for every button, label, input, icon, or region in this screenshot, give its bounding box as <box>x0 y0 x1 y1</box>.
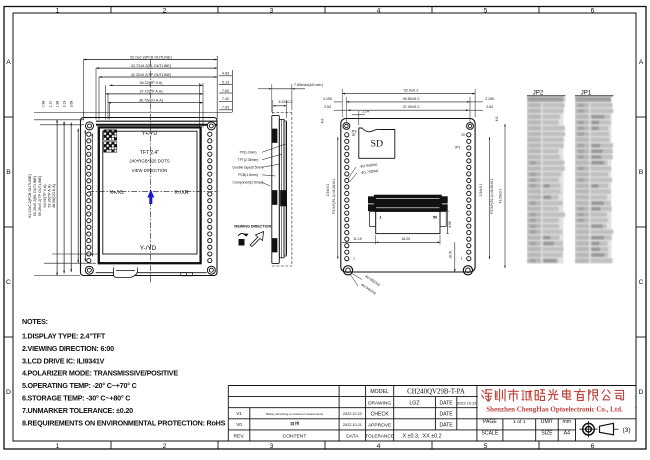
svg-text:PAGE: PAGE <box>483 419 497 425</box>
svg-text:A: A <box>6 59 11 66</box>
svg-text:0.98: 0.98 <box>42 101 46 108</box>
svg-text:NOTES:: NOTES: <box>22 317 48 326</box>
svg-text:3: 3 <box>270 7 274 14</box>
svg-text:6: 6 <box>591 7 595 14</box>
svg-text:42.32±0.2(TP OUTLINE): 42.32±0.2(TP OUTLINE) <box>131 73 172 77</box>
svg-text:1.14: 1.14 <box>362 110 369 114</box>
svg-text:VIEW DIRECTION: VIEW DIRECTION <box>132 168 168 173</box>
svg-text:REV.: REV. <box>234 434 245 440</box>
svg-text:2: 2 <box>163 7 167 14</box>
svg-text:mm: mm <box>563 419 572 425</box>
svg-text:JP1: JP1 <box>581 89 592 96</box>
svg-text:3.LCD DRIVE IC: ILI9341V: 3.LCD DRIVE IC: ILI9341V <box>22 356 105 365</box>
svg-text:20: 20 <box>352 133 356 137</box>
svg-text:2.54: 2.54 <box>486 105 493 109</box>
svg-text:C: C <box>639 279 644 286</box>
svg-text:16.51: 16.51 <box>449 250 453 259</box>
svg-text:1.DISPLAY TYPE: 2.4"TFT: 1.DISPLAY TYPE: 2.4"TFT <box>22 332 106 341</box>
svg-text:SD: SD <box>371 139 384 150</box>
svg-text:2.VIEWING DIRECTION: 6:00: 2.VIEWING DIRECTION: 6:00 <box>22 344 114 353</box>
svg-text:CHECK: CHECK <box>371 411 390 417</box>
svg-text:11.19: 11.19 <box>353 237 362 241</box>
svg-text:1: 1 <box>353 257 355 261</box>
svg-text:1: 1 <box>56 443 60 450</box>
svg-text:P2.54*(20-1)=48.26±0.1: P2.54*(20-1)=48.26±0.1 <box>490 178 494 213</box>
svg-text:5: 5 <box>484 7 488 14</box>
svg-text:50: 50 <box>433 215 437 220</box>
svg-text:7.62: 7.62 <box>222 89 229 93</box>
svg-text:5.13: 5.13 <box>222 80 229 84</box>
svg-text:2022.10.22: 2022.10.22 <box>343 412 362 416</box>
svg-text:59.26±0.2(TP OUTLINE): 59.26±0.2(TP OUTLINE) <box>38 176 42 217</box>
svg-text:37.72(TP A.A): 37.72(TP A.A) <box>139 90 162 94</box>
svg-text:Mainly according to customer r: Mainly according to customer requirement… <box>266 412 324 416</box>
svg-text:47.00±0.2: 47.00±0.2 <box>403 105 420 109</box>
svg-text:DATA: DATA <box>346 434 359 440</box>
svg-text:V1: V1 <box>236 411 242 416</box>
svg-text:VIEWING DIRECTION: VIEWING DIRECTION <box>234 225 272 229</box>
svg-text:3.19: 3.19 <box>63 101 67 108</box>
svg-text:DATE: DATE <box>439 411 453 417</box>
svg-text:JP1: JP1 <box>455 146 461 150</box>
svg-text:43.26±0.1: 43.26±0.1 <box>499 189 503 204</box>
svg-text:D: D <box>639 389 644 396</box>
svg-text:.X ±0.3, .XX ±0.2: .X ±0.3, .XX ±0.2 <box>401 434 442 440</box>
svg-text:6: 6 <box>591 443 595 450</box>
svg-text:8.REQUIREMENTS ON ENVIRONMENTA: 8.REQUIREMENTS ON ENVIRONMENTAL PROTECTI… <box>22 418 226 427</box>
svg-text:1: 1 <box>461 257 463 261</box>
svg-text:P2.54*(20-1)=48.26±0.1: P2.54*(20-1)=48.26±0.1 <box>332 178 336 213</box>
svg-text:1: 1 <box>56 7 60 14</box>
svg-text:36.72(CG A.A): 36.72(CG A.A) <box>139 99 163 103</box>
svg-text:TFT(2.35mm): TFT(2.35mm) <box>238 158 259 162</box>
svg-text:X-/XR: X-/XR <box>174 190 188 196</box>
svg-text:52.0±0.2(PCB OUTLINE): 52.0±0.2(PCB OUTLINE) <box>130 55 171 59</box>
svg-text:2022.10.22: 2022.10.22 <box>457 400 476 405</box>
svg-text:B: B <box>6 169 11 176</box>
svg-text:2022.10.21: 2022.10.21 <box>343 423 362 427</box>
svg-text:Y-/YD: Y-/YD <box>140 245 157 252</box>
svg-text:CH240QV29B-T-PA: CH240QV29B-T-PA <box>407 388 465 395</box>
svg-text:4.93: 4.93 <box>222 72 229 76</box>
svg-text:1.98: 1.98 <box>56 101 60 108</box>
svg-text:Shenzhen ChengHao Optoelectron: Shenzhen ChengHao Optoelectronic Co., Lt… <box>486 406 623 414</box>
svg-text:7.42: 7.42 <box>222 97 229 101</box>
svg-text:2.159: 2.159 <box>323 97 332 101</box>
svg-text:4.95: 4.95 <box>448 221 452 228</box>
svg-text:36.32(TP V.A): 36.32(TP V.A) <box>140 81 163 85</box>
svg-text:1.10: 1.10 <box>49 101 53 108</box>
svg-text:TFT 2.4": TFT 2.4" <box>140 150 159 156</box>
svg-text:4: 4 <box>377 443 381 450</box>
svg-text:6.STORAGE TEMP: -30° C~+80° C: 6.STORAGE TEMP: -30° C~+80° C <box>22 394 130 403</box>
svg-text:48.96(CG A.A): 48.96(CG A.A) <box>52 184 56 208</box>
svg-text:2.54±0.1: 2.54±0.1 <box>326 183 330 196</box>
svg-text:60.26±0.2(BL OUTLINE): 60.26±0.2(BL OUTLINE) <box>33 176 37 216</box>
svg-text:UMIT: UMIT <box>541 419 553 425</box>
svg-text:5: 5 <box>484 443 488 450</box>
svg-text:TP(1.0mm): TP(1.0mm) <box>240 151 257 155</box>
svg-text:54.06(TP V.A): 54.06(TP V.A) <box>43 185 47 208</box>
svg-text:JP2: JP2 <box>533 89 544 96</box>
svg-text:4.6: 4.6 <box>321 119 325 124</box>
svg-text:2.54: 2.54 <box>324 105 331 109</box>
svg-text:DATE: DATE <box>439 400 453 406</box>
svg-text:3: 3 <box>270 443 274 450</box>
svg-text:PCB(1.6mm): PCB(1.6mm) <box>238 173 258 177</box>
svg-text:A: A <box>639 59 644 66</box>
svg-text:SIZE: SIZE <box>541 430 553 436</box>
svg-text:LGZ: LGZ <box>409 401 420 407</box>
svg-text:Double tape(0.5mm): Double tape(0.5mm) <box>233 166 264 170</box>
svg-text:2: 2 <box>163 443 167 450</box>
svg-text:53.26(TP A.A): 53.26(TP A.A) <box>48 184 52 207</box>
svg-text:CONTENT: CONTENT <box>283 434 307 440</box>
svg-text:4: 4 <box>377 7 381 14</box>
svg-text:7.03: 7.03 <box>222 106 229 110</box>
svg-text:52.0±0.2: 52.0±0.2 <box>404 88 419 92</box>
svg-text:3.68: 3.68 <box>70 101 74 108</box>
svg-text:7.65max(All over): 7.65max(All over) <box>294 83 323 87</box>
svg-text:DATE: DATE <box>439 423 453 429</box>
svg-text:X+/XL: X+/XL <box>110 190 125 196</box>
svg-text:B: B <box>639 169 644 176</box>
svg-text:240*RGB*320 DOTS: 240*RGB*320 DOTS <box>129 158 169 163</box>
svg-text:1 of 1: 1 of 1 <box>513 419 526 425</box>
svg-text:2.54±0.1: 2.54±0.1 <box>479 183 483 196</box>
svg-text:42.72±0.2(BL OUTLINE): 42.72±0.2(BL OUTLINE) <box>131 64 171 68</box>
svg-text:62.23±0.2(PCB OUTLINE): 62.23±0.2(PCB OUTLINE) <box>28 174 32 217</box>
svg-text:Y+/YU: Y+/YU <box>142 131 158 137</box>
svg-text:20: 20 <box>461 133 465 137</box>
svg-text:(3): (3) <box>622 427 630 434</box>
svg-text:4.6: 4.6 <box>495 117 499 122</box>
svg-text:D: D <box>6 389 11 396</box>
svg-text:APPROVE: APPROVE <box>368 423 391 429</box>
svg-text:SCALE: SCALE <box>482 430 499 436</box>
svg-text:49.50±0.2: 49.50±0.2 <box>403 97 420 101</box>
svg-text:5.15±0.2: 5.15±0.2 <box>279 100 293 104</box>
svg-text:TOLERANCE: TOLERANCE <box>365 434 394 439</box>
svg-text:18.20: 18.20 <box>401 237 410 241</box>
svg-text:A4: A4 <box>564 430 570 436</box>
svg-text:4.POLARIZER MODE: TRANSMISSIVE: 4.POLARIZER MODE: TRANSMISSIVE/POSITIVE <box>22 369 178 378</box>
svg-text:MODEL: MODEL <box>370 389 389 395</box>
svg-text:2.159: 2.159 <box>485 97 494 101</box>
svg-text:7.UNMARKER TOLERANCE: ±0.20: 7.UNMARKER TOLERANCE: ±0.20 <box>22 406 133 415</box>
svg-text:Component(2.5max): Component(2.5max) <box>233 181 264 185</box>
svg-text:5.OPERATING TEMP: -20° C~+70°: 5.OPERATING TEMP: -20° C~+70° C <box>22 381 137 390</box>
svg-text:V0: V0 <box>236 422 242 427</box>
svg-text:DRAWING: DRAWING <box>368 400 391 406</box>
svg-text:C: C <box>6 279 11 286</box>
